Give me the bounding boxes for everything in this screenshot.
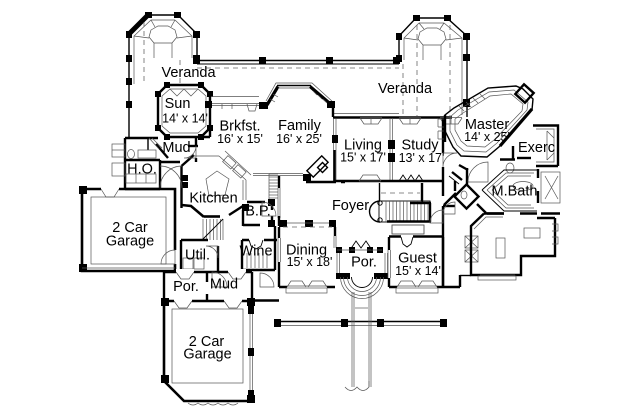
svg-text:Mud: Mud	[162, 140, 190, 156]
svg-text:14' x 25': 14' x 25'	[464, 130, 510, 144]
svg-text:14' x 14': 14' x 14'	[162, 112, 208, 126]
svg-text:Veranda: Veranda	[378, 81, 433, 97]
svg-text:16' x 25': 16' x 25'	[276, 132, 322, 146]
svg-text:Garage: Garage	[183, 347, 231, 363]
svg-text:16' x 15': 16' x 15'	[217, 132, 263, 146]
svg-text:15' x 18': 15' x 18'	[287, 255, 333, 269]
svg-text:Sun: Sun	[165, 96, 191, 112]
svg-text:M.Bath: M.Bath	[492, 184, 538, 200]
svg-text:15' x 14': 15' x 14'	[395, 264, 441, 278]
svg-text:13' x 17': 13' x 17'	[399, 151, 445, 165]
svg-text:H.O.: H.O.	[127, 162, 157, 178]
svg-text:Util.: Util.	[185, 248, 210, 264]
svg-text:Foyer: Foyer	[332, 198, 369, 214]
svg-text:Por.: Por.	[173, 279, 199, 295]
svg-text:Kitchen: Kitchen	[189, 191, 237, 207]
svg-text:15' x 17': 15' x 17'	[340, 151, 386, 165]
svg-text:Mud: Mud	[210, 277, 238, 293]
svg-text:Wine: Wine	[239, 244, 272, 260]
svg-text:Veranda: Veranda	[161, 65, 216, 81]
svg-text:Por.: Por.	[351, 255, 377, 271]
svg-text:Garage: Garage	[106, 234, 154, 250]
svg-text:Exerc: Exerc	[518, 140, 555, 156]
svg-text:B.P.: B.P.	[245, 204, 271, 220]
